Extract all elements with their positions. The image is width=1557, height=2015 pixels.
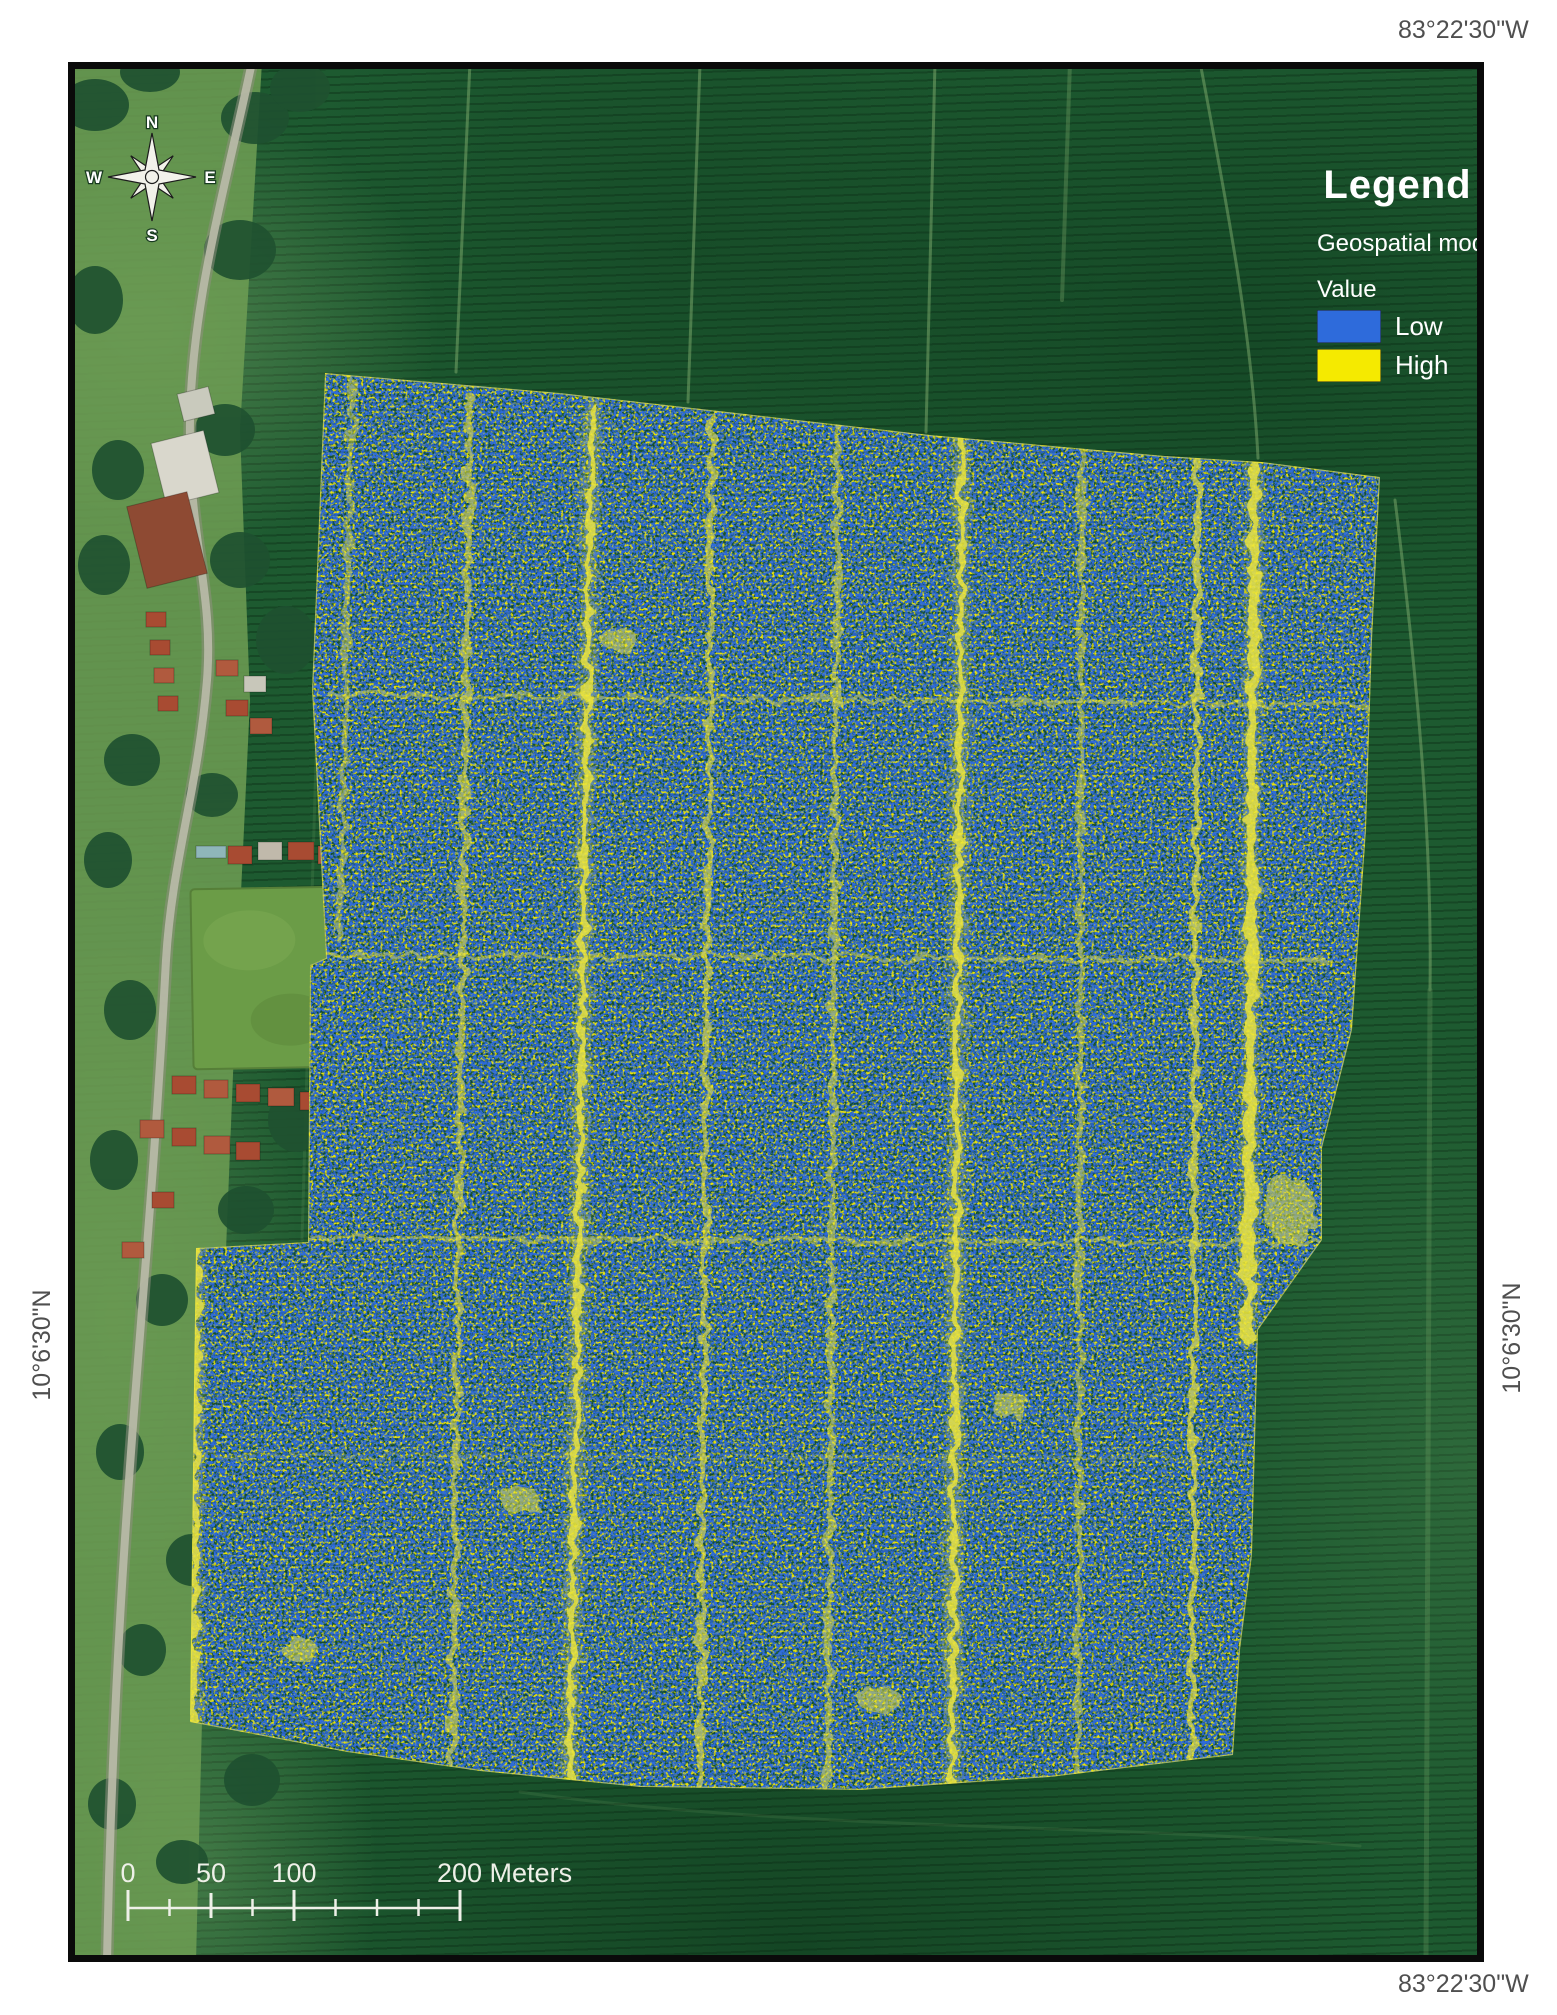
compass-w-label: W: [86, 168, 103, 187]
legend-label-high: High: [1395, 350, 1448, 381]
legend-swatch-low: [1317, 310, 1381, 343]
longitude-label-bottom: 83°22'30"W: [1398, 1970, 1529, 1999]
overlay-raster: [185, 365, 1385, 1795]
scale-label-0: 0: [120, 1858, 135, 1888]
map-drawing: N E S W 0 50: [68, 62, 1484, 1962]
legend-item-low: Low: [1317, 310, 1484, 343]
legend: Legend Geospatial model Value Low High: [1290, 163, 1484, 382]
map-figure: 83°22'30"W 83°22'30"W 10°6'30"N 10°6'30"…: [0, 0, 1557, 2015]
compass-s-label: S: [146, 226, 157, 245]
legend-title: Legend: [1290, 163, 1484, 208]
longitude-label-top: 83°22'30"W: [1398, 16, 1529, 45]
legend-swatch-high: [1317, 349, 1381, 382]
compass-n-label: N: [146, 113, 158, 132]
scale-label-100: 100: [271, 1858, 316, 1888]
legend-layer-name: Geospatial model: [1317, 230, 1484, 258]
latitude-label-left: 10°6'30"N: [27, 1265, 57, 1425]
legend-item-high: High: [1317, 349, 1484, 382]
scale-label-50: 50: [196, 1858, 226, 1888]
legend-field-name: Value: [1317, 276, 1484, 304]
map-canvas: N E S W 0 50: [68, 62, 1484, 1962]
scale-label-200m: 200 Meters: [437, 1858, 572, 1888]
legend-label-low: Low: [1395, 311, 1443, 342]
latitude-label-right: 10°6'30"N: [1497, 1258, 1527, 1418]
compass-e-label: E: [204, 168, 215, 187]
